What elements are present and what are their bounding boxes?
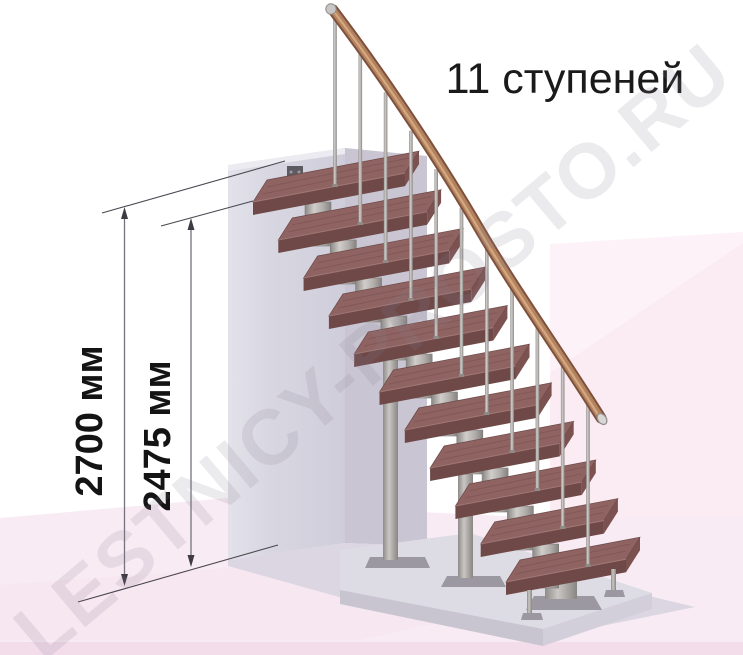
baluster — [561, 362, 565, 529]
baluster-foot — [560, 526, 565, 529]
baluster-foot — [535, 488, 540, 491]
baluster-foot — [332, 184, 337, 187]
step-leg — [527, 590, 532, 614]
baluster-foot — [585, 564, 590, 567]
mount-bolt — [290, 171, 293, 174]
baluster-foot — [484, 412, 489, 415]
baluster-foot — [459, 374, 464, 377]
total-height-label: 2700 мм — [69, 345, 111, 496]
baluster — [510, 285, 514, 453]
leg-plate — [521, 613, 543, 620]
staircase-scene: 2700 мм 2475 мм 11 ступеней LESTNICY-PRO… — [0, 0, 743, 655]
step-leg — [611, 569, 616, 592]
baluster-foot — [383, 260, 388, 263]
baluster-foot — [358, 222, 363, 225]
baluster — [384, 92, 388, 263]
baluster — [359, 54, 363, 225]
leg-plate — [604, 590, 625, 597]
floor-edge-strip — [0, 642, 743, 655]
baluster — [586, 400, 590, 567]
mount-bolt — [298, 171, 301, 174]
baluster — [333, 15, 337, 187]
handrail-top-cap — [326, 4, 336, 14]
baluster — [536, 323, 540, 491]
base-plate — [441, 576, 506, 587]
staircase-illustration: 2700 мм 2475 мм 11 ступеней LESTNICY-PRO… — [0, 0, 743, 655]
baluster-foot — [510, 450, 515, 453]
